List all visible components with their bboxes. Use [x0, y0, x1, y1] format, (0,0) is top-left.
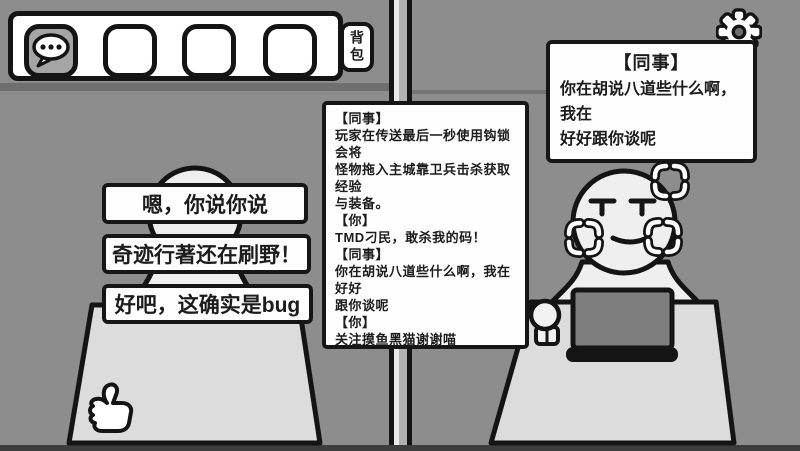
hotbar	[8, 11, 343, 81]
laptop-base	[566, 347, 678, 362]
hotbar-slot-empty-3[interactable]	[182, 24, 236, 78]
colleague-bubble-title: 【同事】	[560, 49, 743, 75]
chat-log-panel: 【同事】 玩家在传送最后一秒使用钩锁会将 怪物拖入主城靠卫兵击杀获取经验 与装备…	[322, 101, 529, 349]
chat-log-text: 【同事】 玩家在传送最后一秒使用钩锁会将 怪物拖入主城靠卫兵击杀获取经验 与装备…	[335, 110, 516, 349]
hotbar-slot-empty-4[interactable]	[263, 24, 317, 78]
game-screen: 嗯，你说你说 奇迹行著还在刷野！ 好吧，这确实是bug 【同事】 玩家在传送最后…	[0, 0, 800, 451]
player-bubble-text: 嗯，你说你说	[142, 189, 268, 219]
hotbar-slot-chat[interactable]	[24, 24, 78, 78]
player-speech-bubble-3: 好吧，这确实是bug	[102, 284, 313, 324]
chat-bubble-icon	[31, 33, 71, 69]
colleague-bubble-text: 你在胡说八道些什么啊，我在 好好跟你谈呢	[560, 77, 743, 152]
player-speech-bubble-2: 奇迹行著还在刷野！	[102, 234, 311, 274]
anger-mark-icon	[655, 166, 685, 196]
player-bubble-text: 奇迹行著还在刷野！	[112, 239, 301, 269]
player-speech-bubble-1: 嗯，你说你说	[102, 183, 308, 224]
laptop	[566, 290, 678, 362]
backpack-tab[interactable]: 背包	[340, 22, 374, 72]
colleague-speech-bubble: 【同事】 你在胡说八道些什么啊，我在 好好跟你谈呢	[546, 40, 757, 163]
hotbar-slot-empty-2[interactable]	[103, 24, 157, 78]
backpack-label: 背包	[350, 30, 364, 64]
mug	[531, 301, 559, 344]
laptop-screen	[573, 290, 672, 348]
player-bubble-text: 好吧，这确实是bug	[115, 289, 300, 319]
